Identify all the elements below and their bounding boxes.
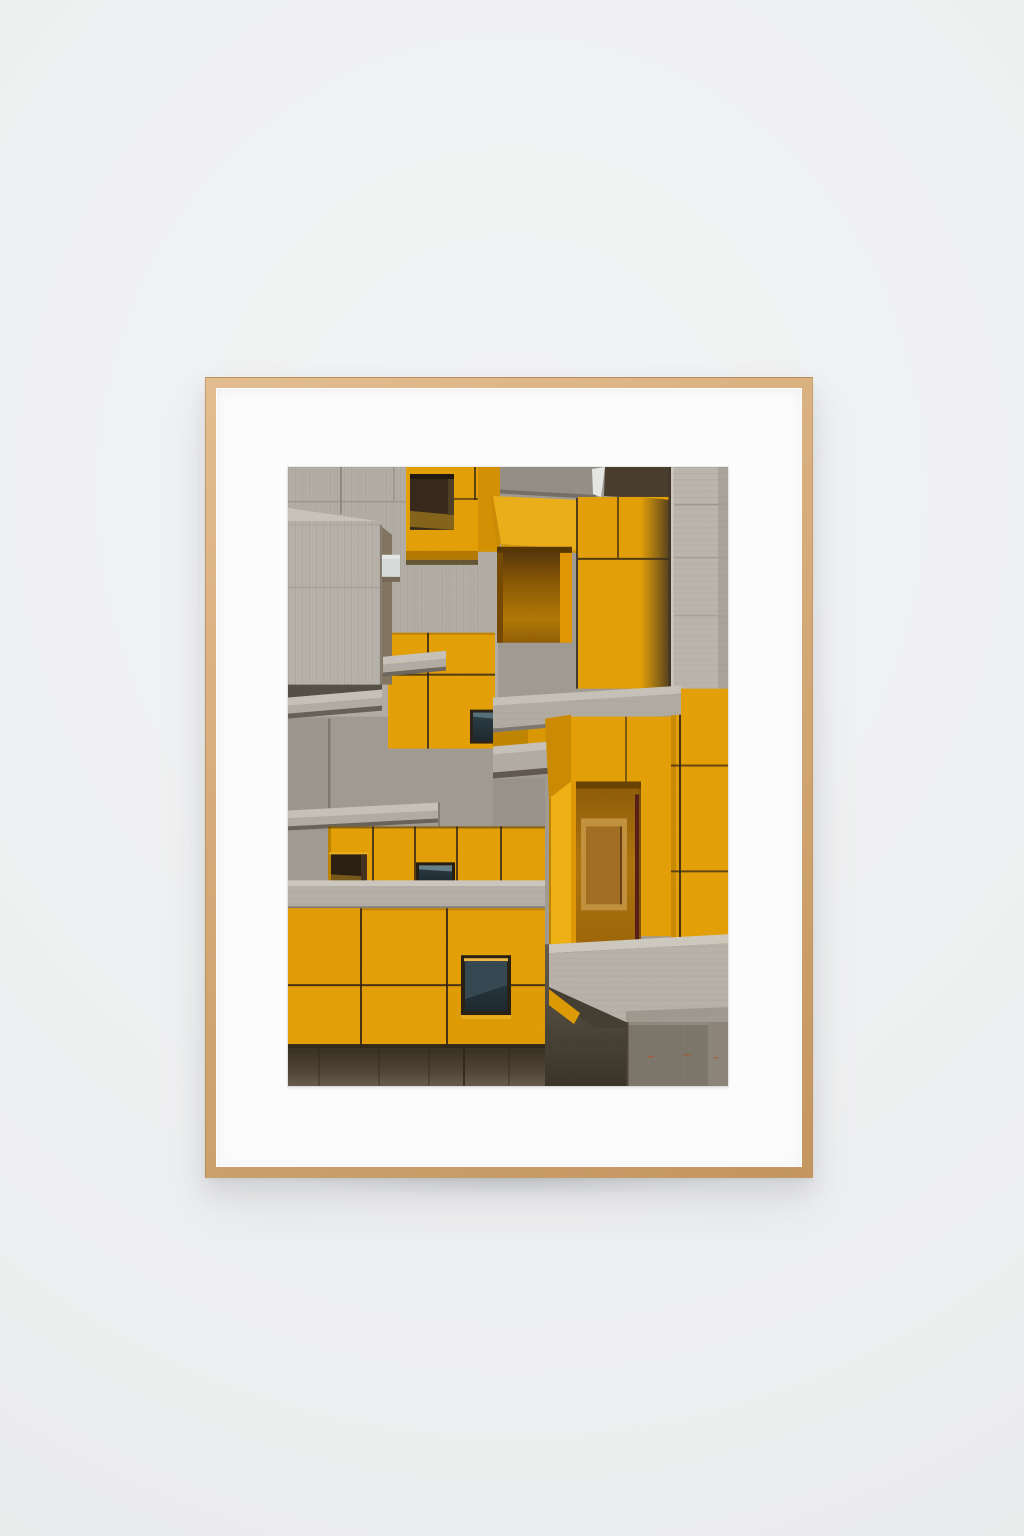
frame-drop-shadow (215, 1178, 803, 1204)
scene: { "artwork": { "alt": "Framed photograph… (0, 0, 1024, 1536)
mat-board (216, 388, 802, 1167)
brutalist-facade-artwork (288, 467, 728, 1086)
art-print (288, 467, 728, 1086)
picture-frame (205, 377, 813, 1178)
film-grain-overlay (288, 467, 728, 1086)
